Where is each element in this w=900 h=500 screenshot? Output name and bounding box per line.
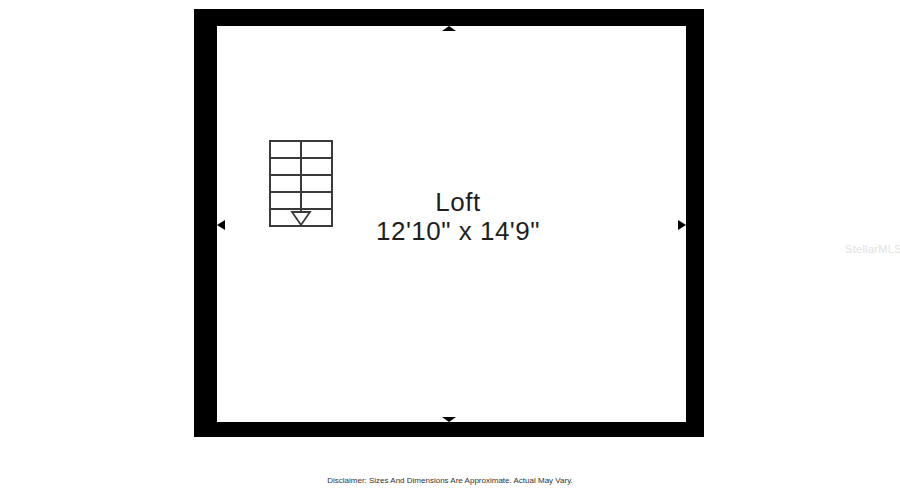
room-outline: Loft 12'10" x 14'9" (194, 9, 704, 437)
staircase-icon (269, 140, 333, 227)
room-dimensions: 12'10" x 14'9" (376, 217, 540, 246)
disclaimer-text: Disclaimer: Sizes And Dimensions Are App… (327, 476, 573, 485)
right-wall-arrow-icon (678, 220, 686, 230)
floor-plan-canvas: Loft 12'10" x 14'9" StellarMLS Disclaime… (0, 0, 900, 500)
top-wall-arrow-icon (442, 26, 456, 31)
room-label: Loft 12'10" x 14'9" (376, 188, 540, 246)
left-wall-arrow-icon (217, 220, 225, 230)
bottom-wall-arrow-icon (442, 417, 456, 422)
watermark: StellarMLS (845, 243, 900, 255)
room-name: Loft (376, 188, 540, 217)
